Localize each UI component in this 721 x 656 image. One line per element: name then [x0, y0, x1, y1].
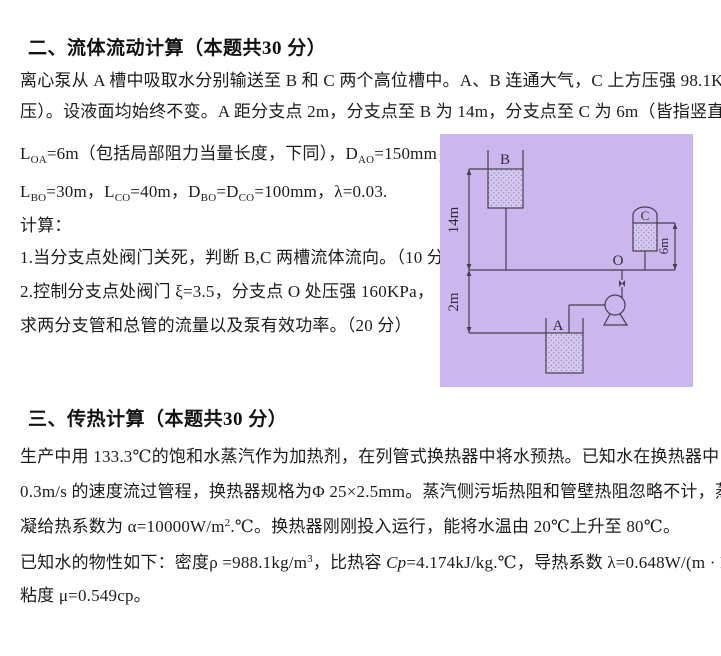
fluid-params-line-1: LOA=6m（包括局部阻力当量长度，下同），DAO=150mm； [20, 139, 454, 166]
tank-b-water [488, 169, 523, 208]
dim-6m-label: 6m [656, 238, 671, 255]
dimension-14m [469, 169, 488, 270]
arrow-up-icon [467, 270, 472, 276]
pipe-system-diagram-svg: B C A O 14m 2m 6m [440, 134, 693, 387]
arrow-down-icon [673, 264, 678, 270]
section-heat-heading: 三、传热计算（本题共30 分） [28, 404, 287, 431]
dim-2m-label: 2m [446, 292, 462, 312]
fluid-problem-line-1: 离心泵从 A 槽中吸取水分别输送至 B 和 C 两个高位槽中。A、B 连通大气，… [20, 66, 721, 91]
tank-c-label: C [641, 208, 650, 223]
tank-a [546, 318, 583, 373]
dimension-2m [469, 270, 546, 333]
fluid-question-2-line-1: 2.控制分支点处阀门 ξ=3.5，分支点 O 处压强 160KPa， [20, 277, 434, 302]
tank-c-water [633, 223, 657, 251]
heat-properties-line-1: 已知水的物性如下：密度ρ =988.1kg/m3，比热容 Cp=4.174kJ/… [20, 548, 721, 573]
arrow-down-icon [467, 264, 472, 270]
fluid-problem-line-2: 压）。设液面均始终不变。A 距分支点 2m，分支点至 B 为 14m，分支点至 … [20, 97, 721, 122]
exam-page: 二、流体流动计算（本题共30 分） 离心泵从 A 槽中吸取水分别输送至 B 和 … [0, 0, 721, 656]
pipe-system-diagram: B C A O 14m 2m 6m [440, 134, 693, 387]
fluid-question-2-line-2: 求两分支管和总管的流量以及泵有效功率。（20 分） [20, 311, 412, 336]
fluid-calc-label: 计算： [20, 211, 72, 236]
heat-problem-line-2: 0.3m/s 的速度流过管程，换热器规格为Φ 25×2.5mm。蒸汽侧污垢热阻和… [20, 477, 721, 502]
heat-problem-line-3: 凝给热系数为 α=10000W/m2.℃。换热器刚刚投入运行，能将水温由 20℃… [20, 512, 680, 537]
tank-a-water [546, 333, 583, 373]
heat-properties-line-2: 粘度 μ=0.549cp。 [20, 581, 151, 606]
valve-icon [619, 280, 625, 287]
branch-point-o-label: O [613, 253, 624, 269]
arrow-up-icon [673, 223, 678, 229]
pump-icon [605, 295, 625, 315]
tank-b-label: B [500, 152, 510, 168]
section-fluid-heading: 二、流体流动计算（本题共30 分） [28, 33, 326, 60]
tank-b [488, 150, 523, 270]
dim-14m-label: 14m [446, 206, 462, 233]
fluid-question-1: 1.当分支点处阀门关死，判断 B,C 两槽流体流向。（10 分） [20, 243, 461, 268]
arrow-up-icon [467, 169, 472, 175]
heat-problem-line-1: 生产中用 133.3℃的饱和水蒸汽作为加热剂，在列管式换热器中将水预热。已知水在… [20, 442, 721, 467]
tank-a-label: A [553, 318, 564, 334]
fluid-params-line-2: LBO=30m，LCO=40m，DBO=DCO=100mm，λ=0.03. [20, 177, 387, 204]
arrow-down-icon [467, 327, 472, 333]
pump-base [604, 314, 627, 325]
